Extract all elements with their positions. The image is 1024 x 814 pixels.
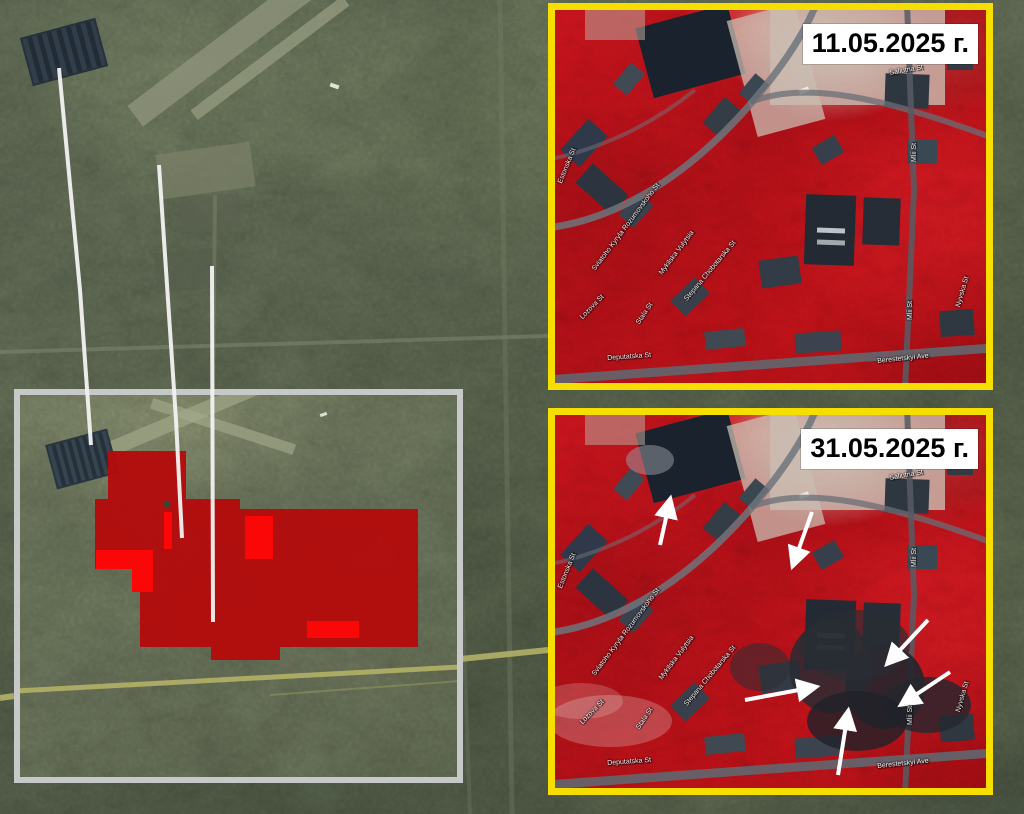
date-badge-after: 31.05.2025 г. xyxy=(801,429,978,469)
concrete-area xyxy=(585,415,645,445)
building xyxy=(939,309,975,337)
street-label: Mykilska Vulytsia xyxy=(658,230,696,277)
street-label: Stala St xyxy=(635,302,655,326)
roof-damage xyxy=(626,445,674,475)
base-map-road xyxy=(0,696,14,698)
inset-factory-roof xyxy=(48,431,117,487)
panel-before-strike: Saliutna StMlii StMlii StNyvska StBerest… xyxy=(548,3,993,390)
base-map-road xyxy=(500,0,512,814)
street-label: Mlii St xyxy=(907,301,914,320)
damage-bright-patch xyxy=(96,550,153,569)
roof-stripe xyxy=(817,228,845,234)
street-label: Stepana Chobotarska St xyxy=(683,645,737,708)
street-label: Lozova St xyxy=(579,294,606,321)
date-text-after: 31.05.2025 г. xyxy=(810,433,969,463)
damage-bright-patch xyxy=(132,569,153,592)
damage-arrow xyxy=(660,500,670,545)
street-label: Berestetskyi Ave xyxy=(877,353,929,365)
street-label: Berestetskyi Ave xyxy=(877,758,929,770)
date-text-before: 11.05.2025 г. xyxy=(812,28,969,58)
street-label: Mykilska Vulytsia xyxy=(658,635,696,682)
building xyxy=(884,478,929,514)
building xyxy=(704,733,746,755)
inset-road xyxy=(20,667,457,691)
building xyxy=(794,330,841,353)
street-label: Deputatska St xyxy=(607,757,651,767)
building xyxy=(575,163,628,214)
airfield-apron xyxy=(155,142,255,200)
inset-aircraft-dot xyxy=(320,412,328,417)
building xyxy=(613,62,645,95)
building xyxy=(704,328,746,350)
building xyxy=(703,502,742,542)
burn-mark xyxy=(800,610,910,680)
annotated-satellite-figure: Saliutna StMlii StMlii StNyvska StBerest… xyxy=(0,0,1024,814)
damage-polygon xyxy=(95,451,418,660)
concrete-area xyxy=(585,10,645,40)
damage-bright-patch xyxy=(245,516,273,559)
aircraft-dot xyxy=(330,83,340,90)
street-label: Mlii St xyxy=(907,706,914,725)
building xyxy=(703,97,742,137)
base-map-road xyxy=(451,650,548,660)
base-map-road xyxy=(0,336,548,352)
roof-stripe xyxy=(817,240,845,246)
building xyxy=(812,135,845,165)
panel-after-strike: Saliutna StMlii StMlii StNyvska StBerest… xyxy=(548,408,993,795)
damage-bright-patch xyxy=(164,512,172,549)
inset-runway xyxy=(102,389,264,459)
building xyxy=(812,540,845,570)
inset-road xyxy=(270,681,457,695)
building xyxy=(575,568,628,619)
industrial-area xyxy=(179,192,242,232)
street-label: Nyvska St xyxy=(955,276,970,308)
date-badge-before: 11.05.2025 г. xyxy=(803,24,978,64)
street-label: Stepana Chobotarska St xyxy=(683,240,737,303)
industrial-area xyxy=(153,247,226,293)
street-label: Mlii St xyxy=(911,548,918,567)
burn-mark xyxy=(807,691,907,751)
building xyxy=(758,255,802,288)
hangar-building xyxy=(635,4,745,98)
building xyxy=(862,197,901,245)
burn-mark xyxy=(730,643,790,691)
factory-roof-stripes xyxy=(22,20,105,84)
damage-hole-dot xyxy=(164,501,171,508)
damage-bright-patch xyxy=(307,621,359,638)
street-label: Deputatska St xyxy=(607,352,651,362)
building xyxy=(884,73,929,109)
inset-overview-box xyxy=(14,389,463,783)
street-label: Mlii St xyxy=(911,143,918,162)
